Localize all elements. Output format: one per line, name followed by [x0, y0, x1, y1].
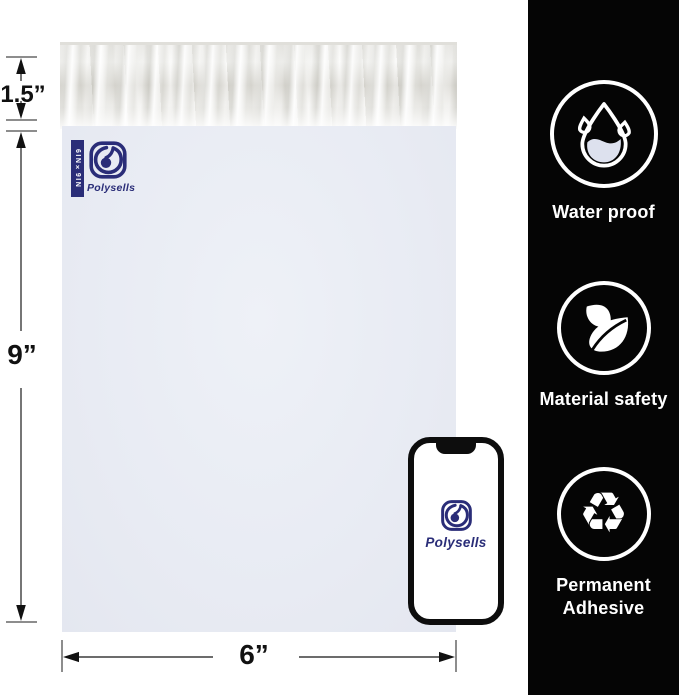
- recycle-icon: ♻: [557, 467, 651, 561]
- feature-permanent-adhesive: ♻ Permanent Adhesive: [528, 467, 679, 619]
- bag-height-label: 9”: [0, 341, 45, 369]
- mailer-brand-text: Polysells: [87, 182, 135, 194]
- bag-width-label: 6”: [210, 641, 298, 669]
- recycle-glyph: ♻: [578, 486, 628, 542]
- leaves-icon: [557, 281, 651, 375]
- product-image: 6IN×9IN Polysells Polysells: [0, 0, 679, 695]
- feature-label: Permanent Adhesive: [528, 574, 679, 619]
- mailer-flap: [60, 42, 457, 129]
- size-badge-text: 6IN×9IN: [74, 149, 81, 188]
- mailer-body: [62, 126, 456, 632]
- phone-mockup: Polysells: [408, 437, 504, 625]
- polysells-logo-icon: [88, 140, 128, 180]
- phone-brand-text: Polysells: [425, 535, 486, 550]
- flap-height-label: 1.5”: [0, 83, 48, 107]
- polysells-logo-icon: [440, 499, 473, 532]
- feature-water-proof: Water proof: [528, 80, 679, 224]
- phone-notch: [436, 443, 476, 454]
- feature-label: Material safety: [533, 388, 673, 411]
- feature-label: Water proof: [546, 201, 661, 224]
- mailer-logo-block: 6IN×9IN Polysells: [71, 139, 151, 199]
- size-badge: 6IN×9IN: [71, 140, 84, 197]
- feature-material-safety: Material safety: [528, 281, 679, 411]
- water-drop-icon: [550, 80, 658, 188]
- feature-sidebar: Water proof Material safety ♻ Permanent …: [528, 0, 679, 695]
